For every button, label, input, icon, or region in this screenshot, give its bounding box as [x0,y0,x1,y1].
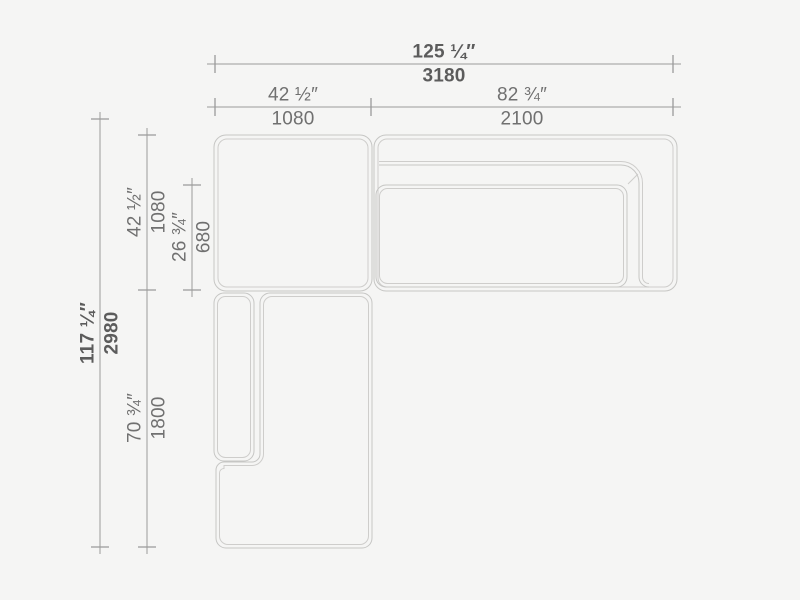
right-module-seat-cushion-inner-outline [380,189,624,284]
right-module-shell-outline [374,135,677,291]
technical-drawing-canvas: 125 ¼″ 3180 42 ½″ 1080 82 ¾″ 2100 117 ¼″… [0,0,800,600]
square-ottoman-module [214,135,372,291]
chaise-module [214,293,372,548]
right-sofa-module [374,135,677,291]
backrest-armrest-inner-edge-offset [379,162,649,284]
right-module-seat-cushion-outline [376,185,627,287]
sofa-technical-drawing [0,0,800,600]
square-module-outline [214,135,372,291]
armrest-miter-seam-line [628,174,638,184]
backrest-armrest-inner-edge [379,165,649,287]
chaise-armrest-inner-outline [218,297,251,458]
chaise-armrest-outline [214,293,254,461]
square-module-inner-outline [218,139,368,287]
dimension-lines [91,55,681,554]
chaise-seat-outline [216,293,372,548]
chaise-seat-inner-outline [220,297,369,545]
